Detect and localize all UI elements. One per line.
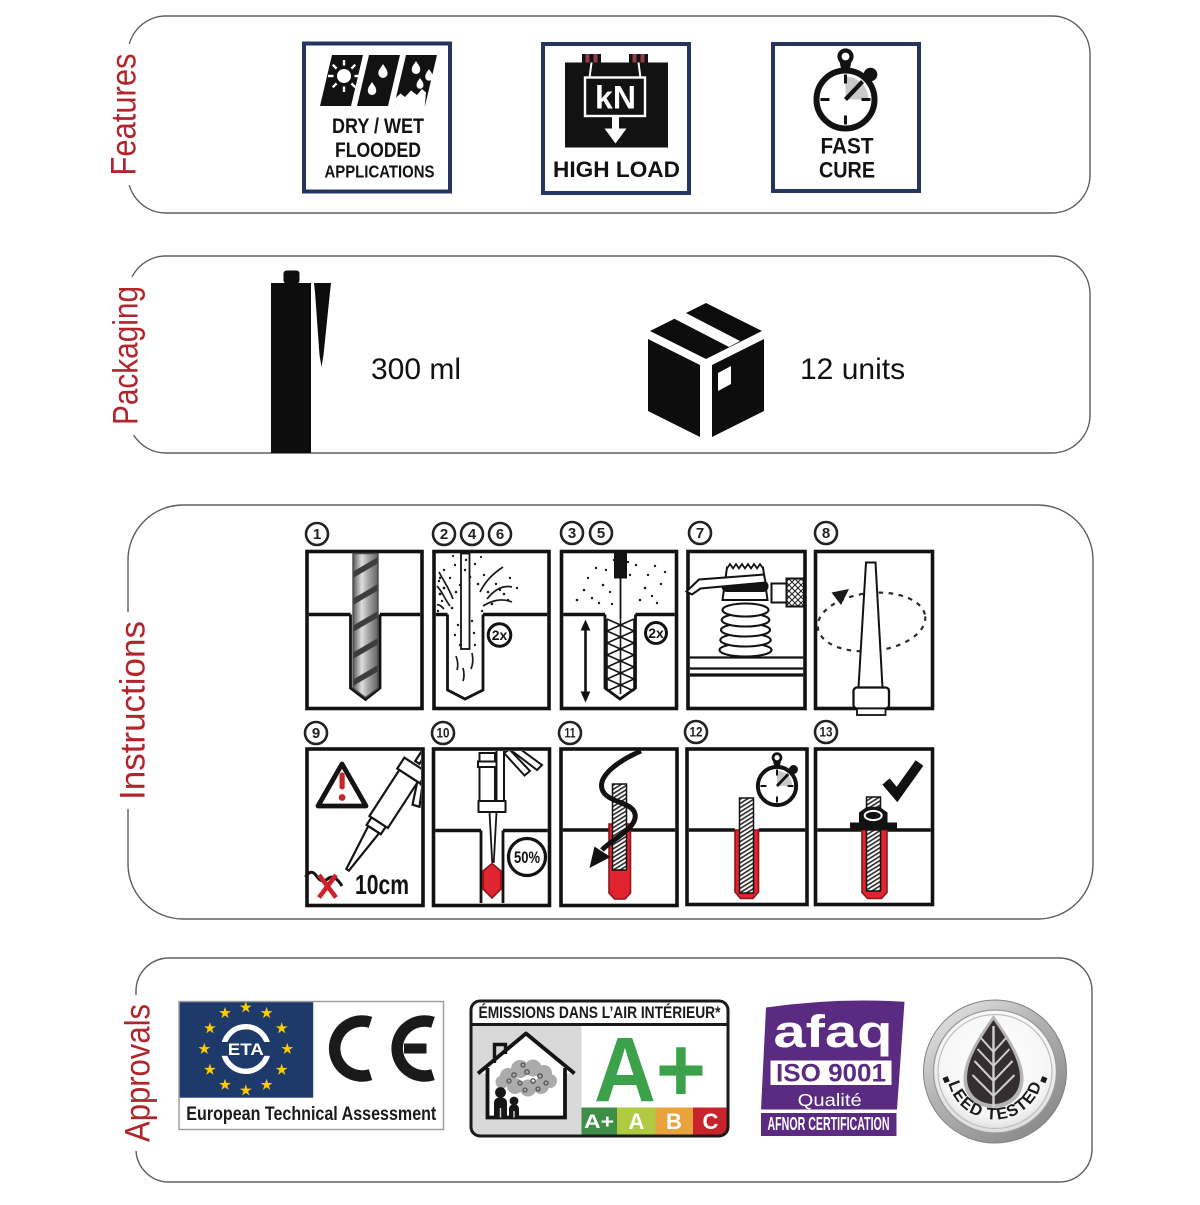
svg-text:12: 12 bbox=[690, 725, 703, 740]
svg-text:300 ml: 300 ml bbox=[371, 353, 461, 386]
svg-text:Approvals: Approvals bbox=[119, 1004, 158, 1142]
svg-text:6: 6 bbox=[496, 526, 504, 543]
svg-text:Packaging: Packaging bbox=[107, 286, 146, 425]
svg-text:2x: 2x bbox=[492, 627, 508, 643]
svg-text:ETA: ETA bbox=[228, 1040, 264, 1059]
svg-text:A+: A+ bbox=[584, 1112, 614, 1133]
svg-text:9: 9 bbox=[312, 725, 320, 742]
svg-text:10cm: 10cm bbox=[355, 869, 409, 900]
svg-text:European Technical Assessment: European Technical Assessment bbox=[186, 1104, 437, 1125]
svg-text:CURE: CURE bbox=[819, 158, 875, 183]
svg-text:12 units: 12 units bbox=[800, 353, 905, 386]
svg-text:2: 2 bbox=[440, 526, 448, 543]
svg-text:13: 13 bbox=[820, 725, 833, 740]
svg-text:2x: 2x bbox=[648, 625, 664, 641]
svg-text:10: 10 bbox=[437, 726, 450, 741]
svg-text:C: C bbox=[703, 1109, 719, 1134]
svg-text:DRY / WET: DRY / WET bbox=[332, 114, 424, 138]
svg-text:HIGH LOAD: HIGH LOAD bbox=[553, 157, 680, 182]
svg-text:1: 1 bbox=[313, 526, 321, 543]
svg-text:afaq: afaq bbox=[774, 1006, 893, 1057]
svg-text:8: 8 bbox=[822, 525, 830, 542]
svg-text:FLOODED: FLOODED bbox=[335, 138, 421, 162]
svg-text:4: 4 bbox=[468, 526, 477, 543]
svg-text:kN: kN bbox=[595, 80, 636, 116]
svg-text:11: 11 bbox=[565, 726, 576, 741]
svg-text:3: 3 bbox=[568, 525, 576, 542]
svg-text:B: B bbox=[666, 1109, 682, 1134]
svg-text:Features: Features bbox=[105, 54, 144, 176]
svg-text:AFNOR CERTIFICATION: AFNOR CERTIFICATION bbox=[768, 1114, 890, 1134]
svg-text:5: 5 bbox=[597, 525, 605, 542]
svg-text:APPLICATIONS: APPLICATIONS bbox=[325, 162, 435, 182]
svg-text:Qualité: Qualité bbox=[798, 1090, 862, 1110]
svg-text:7: 7 bbox=[696, 525, 704, 542]
svg-text:A+: A+ bbox=[594, 1019, 706, 1121]
svg-text:50%: 50% bbox=[514, 848, 540, 867]
svg-text:Instructions: Instructions bbox=[114, 621, 153, 800]
svg-text:A: A bbox=[629, 1109, 645, 1134]
svg-text:FAST: FAST bbox=[821, 134, 875, 159]
svg-text:ISO 9001: ISO 9001 bbox=[776, 1060, 886, 1088]
